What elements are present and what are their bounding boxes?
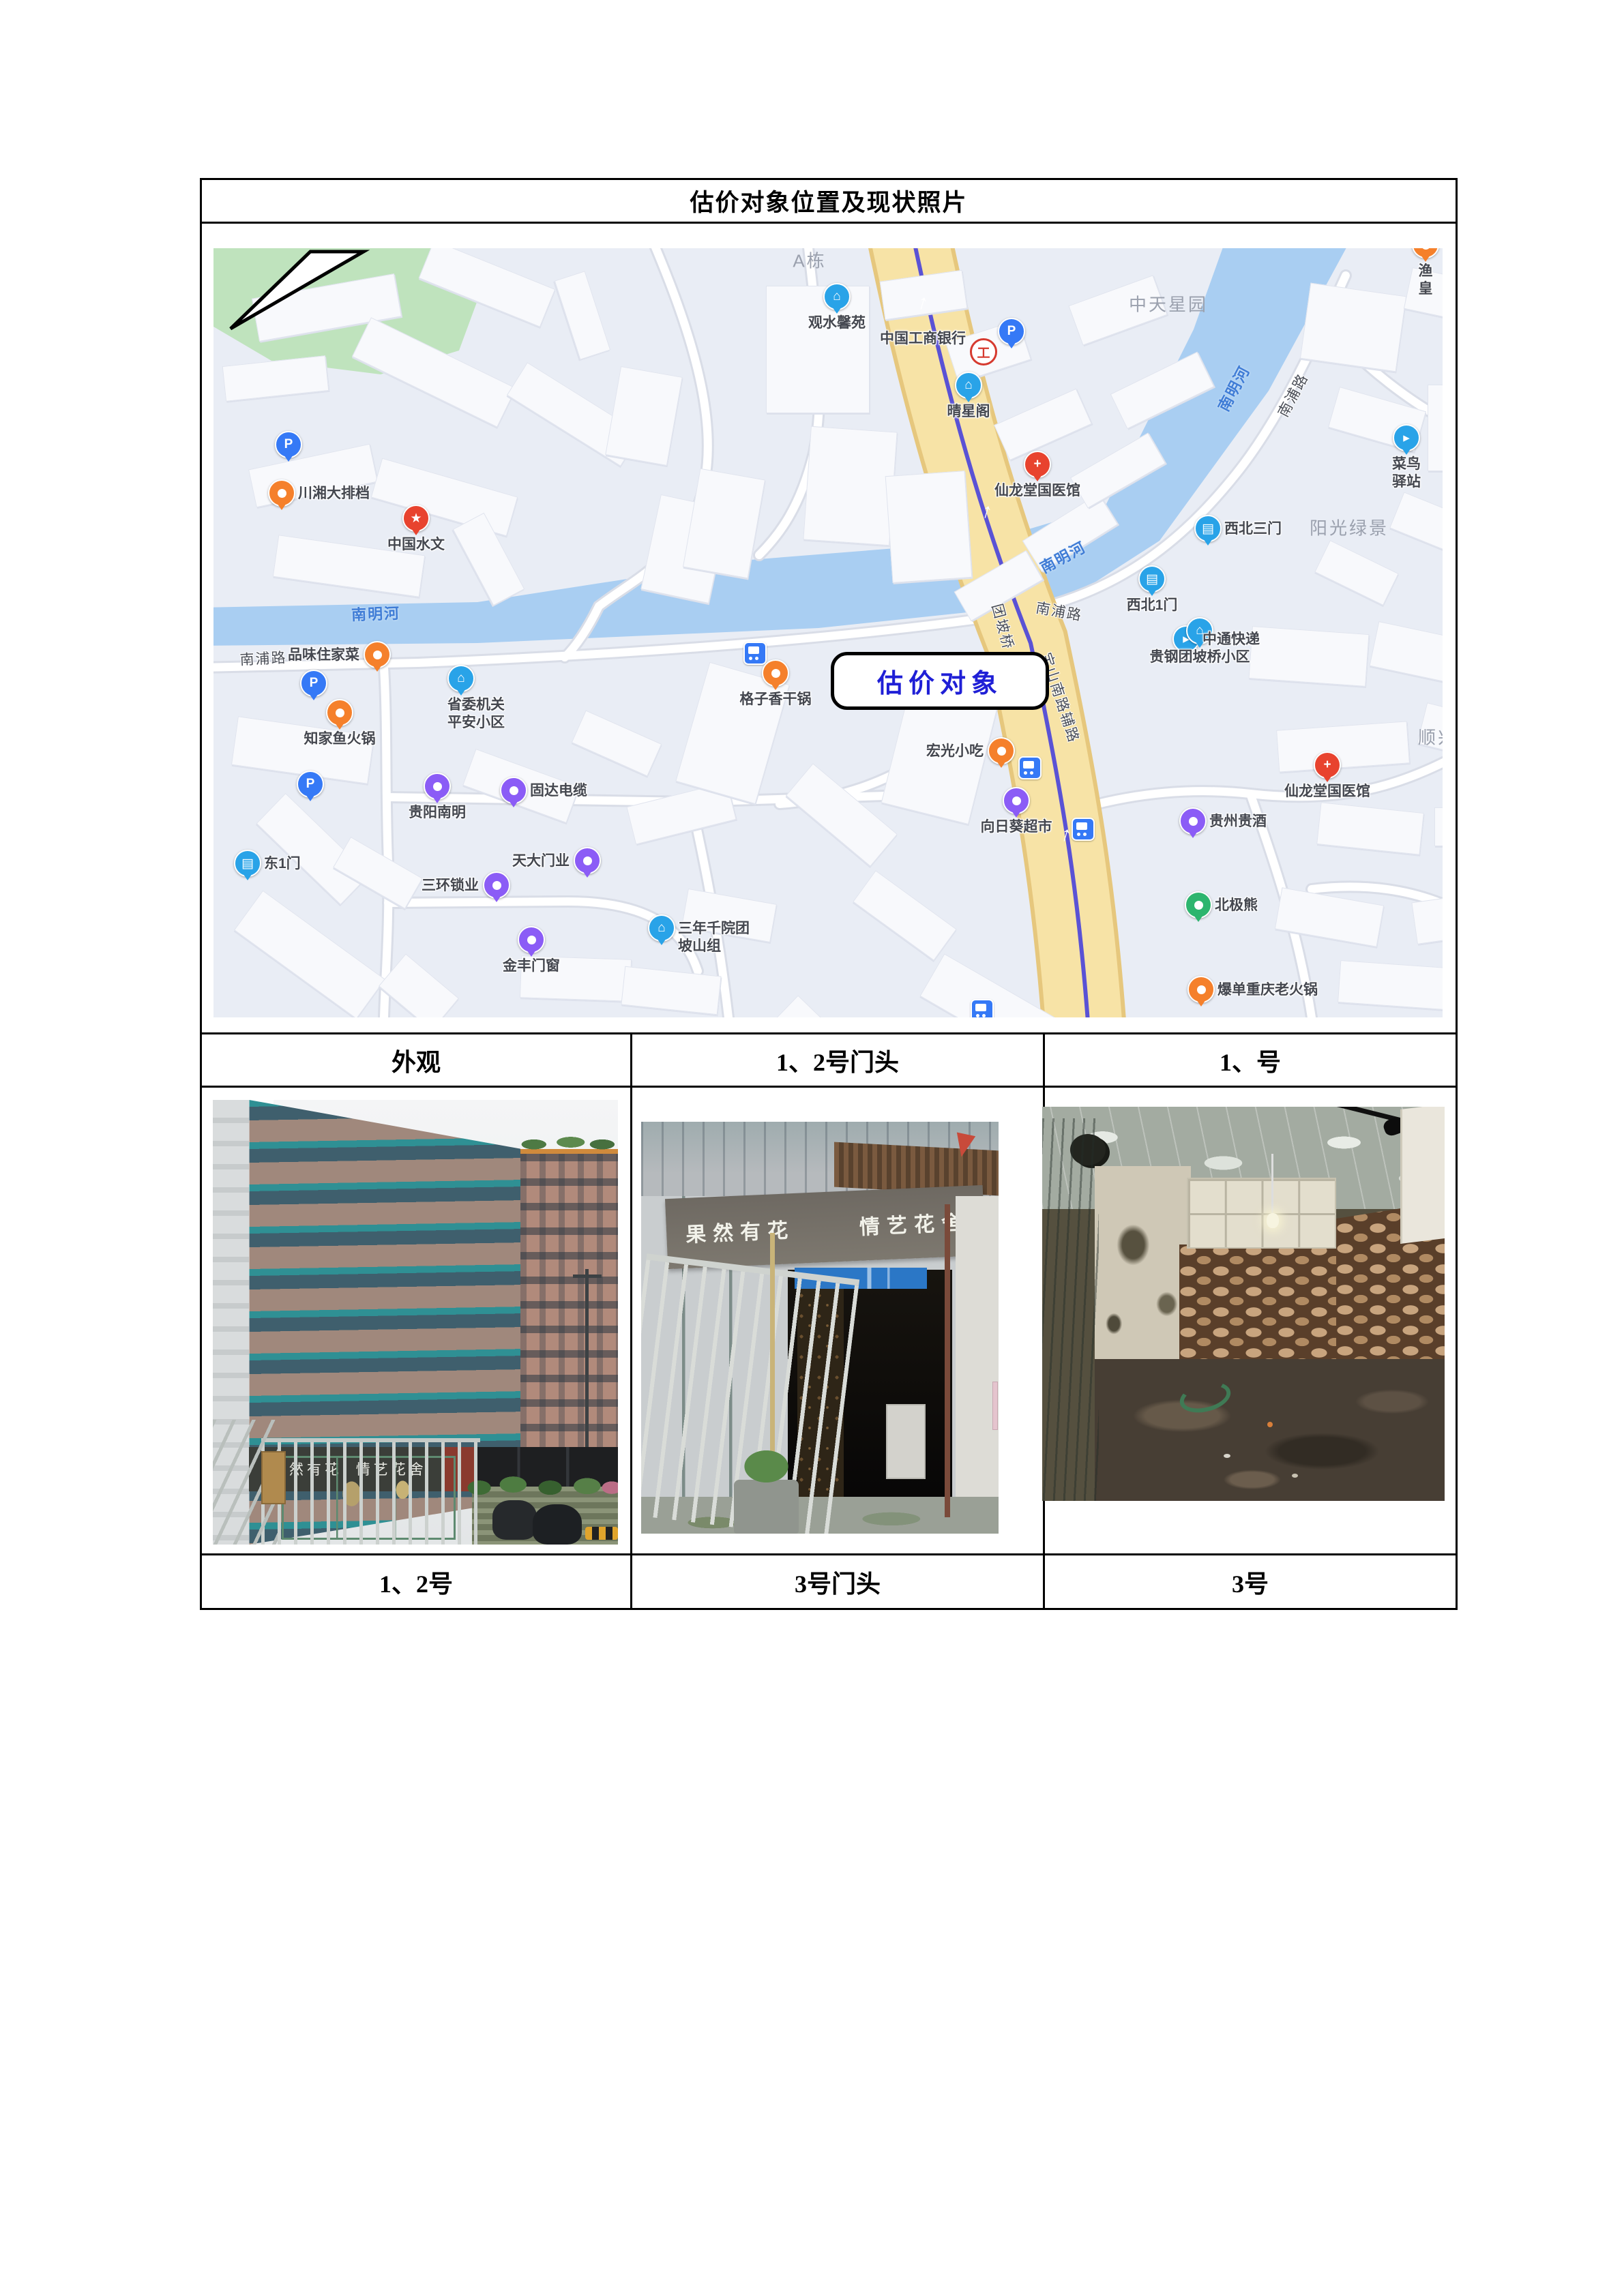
parking-pin-icon: P [998, 318, 1025, 345]
poi-label: 菜鸟驿站 [1389, 456, 1425, 492]
poi-label: 格子香干锅 [740, 691, 812, 709]
gate-pin-icon: ▤ [1138, 565, 1166, 593]
building-pin-icon: ⌂ [955, 372, 982, 399]
photo2-sign-left: 果然有花 [685, 1213, 795, 1248]
food-pin-icon [326, 699, 353, 726]
poi-label: 省委机关 平安小区 [447, 696, 505, 732]
photo1-scooter-1 [492, 1500, 537, 1540]
map-area-label: 中天星园 [1129, 291, 1208, 316]
road-direction-arrow: ↑ [915, 290, 931, 316]
photo3-right-panel [1400, 1107, 1445, 1243]
medical-pin-icon: + [1024, 451, 1051, 478]
poi-label: 固达电缆 [530, 782, 587, 800]
food-pin-icon [364, 641, 391, 668]
poi-label: 三年千院团 坡山组 [678, 920, 750, 956]
photo3-debris-1 [1224, 1454, 1230, 1458]
header-door-1-2: 1、2号门头 [776, 1043, 899, 1078]
map-area-label: A栋 [793, 248, 826, 273]
building-pin-icon: ⌂ [447, 665, 475, 692]
map-poi-layer: P川湘大排档★中国水文⌂观水馨苑工中国工商银行P⌂晴星阁+仙龙堂国医馆渔皇▸菜鸟… [213, 248, 1443, 1017]
green-pin-icon [1185, 891, 1212, 919]
photo2-signboard: 果然有花 情艺花舍 [665, 1185, 986, 1269]
road-direction-arrow: ↑ [979, 499, 995, 524]
header-cell-no1: 1、号 [1043, 1034, 1456, 1086]
poi-label: 向日葵超市 [981, 818, 1052, 836]
parking-pin-icon: P [297, 771, 324, 798]
bus-transit-icon [1018, 756, 1042, 779]
river-name-label: 南明河 [1212, 361, 1254, 415]
photo3-roller-shutter [1042, 1118, 1099, 1501]
poi-label: 中通快递 [1202, 631, 1260, 648]
photo1-roof-plants [513, 1131, 618, 1154]
photo3-light-bulb [1267, 1213, 1279, 1228]
footer-no-3: 3号 [1232, 1564, 1269, 1600]
star-pin-icon: ★ [402, 505, 430, 532]
header-no-1: 1、号 [1220, 1043, 1281, 1078]
poi-label: 渔皇 [1417, 263, 1434, 299]
poi-label: 川湘大排档 [298, 485, 370, 503]
photo1-wood-panel [261, 1451, 286, 1504]
callout-tail [213, 248, 391, 337]
photo3-stone-wall-back [1179, 1244, 1336, 1362]
building-pin-icon: ⌂ [823, 283, 851, 310]
road-name-label: 南浦路 [1034, 597, 1084, 625]
shop-pin-icon [1179, 807, 1207, 835]
photo2-red-pole [945, 1204, 950, 1517]
photo-shop-interior [1042, 1107, 1445, 1501]
photo1-metal-fence [261, 1438, 480, 1545]
bus-transit-icon [971, 999, 994, 1017]
food-pin-icon [1412, 248, 1439, 258]
poi-label: 仙龙堂国医馆 [994, 482, 1080, 500]
poi-label: 观水馨苑 [808, 314, 866, 332]
road-name-label: 南浦路 [239, 646, 287, 670]
shop-pin-icon [1003, 787, 1030, 814]
document-page: 估价对象位置及现状照片 [0, 0, 1624, 2296]
footer-door-3: 3号门头 [795, 1564, 881, 1600]
header-cell-door12: 1、2号门头 [630, 1034, 1043, 1086]
poi-label: 知家鱼火锅 [304, 730, 376, 748]
parking-pin-icon: P [300, 670, 327, 697]
poi-label: 北极熊 [1215, 897, 1258, 914]
river-name-label: 南明河 [351, 601, 400, 625]
footer-row: 1、2号 3号门头 3号 [202, 1555, 1456, 1608]
footer-cell-no3: 3号 [1043, 1555, 1456, 1608]
medical-pin-icon: + [1314, 751, 1341, 779]
river-name-label: 南明河 [1036, 535, 1090, 578]
photo-row: 果然有花 情艺花舍 [202, 1088, 1456, 1555]
photo3-debris-3 [1292, 1474, 1298, 1478]
poi-label: 品味住家菜 [288, 646, 359, 664]
building-pin-icon: ⌂ [648, 914, 675, 942]
poi-label: 宏光小吃 [926, 743, 984, 760]
shop-pin-icon [518, 926, 545, 953]
gate-pin-icon: ▤ [234, 850, 261, 877]
road-name-label: 团坡桥 [988, 601, 1020, 652]
poi-label: 西北三门 [1224, 520, 1282, 538]
food-pin-icon [268, 479, 295, 507]
food-pin-icon [988, 737, 1015, 764]
photo2-right-wall [956, 1196, 999, 1534]
photo2-white-cabinet [886, 1404, 926, 1479]
photo2-sign-right: 情艺花舍 [859, 1206, 969, 1240]
location-map: P川湘大排档★中国水文⌂观水馨苑工中国工商银行P⌂晴星阁+仙龙堂国医馆渔皇▸菜鸟… [213, 248, 1443, 1017]
poi-label: 中国工商银行 [880, 330, 966, 348]
road-name-label: 南浦路 [1273, 369, 1313, 420]
poi-label: 金丰门窗 [503, 957, 560, 975]
food-pin-icon [1187, 976, 1215, 1003]
table-title-row: 估价对象位置及现状照片 [202, 180, 1456, 224]
photo1-plants [464, 1469, 618, 1500]
photo3-bulb-cord [1271, 1154, 1273, 1217]
photo-building-exterior: 果然有花 情艺花舍 [213, 1100, 618, 1545]
icbc-bank-icon: 工 [970, 338, 997, 366]
poi-label: 东1门 [264, 855, 301, 873]
page-title: 估价对象位置及现状照片 [690, 183, 967, 218]
poi-label: 天大门业 [512, 852, 570, 870]
poi-label: 爆单重庆老火锅 [1217, 981, 1318, 999]
poi-label: 晴星阁 [947, 403, 990, 421]
parking-pin-icon: P [275, 431, 302, 458]
photo3-shelving [1187, 1178, 1335, 1249]
truck-pin-icon: ▸ [1393, 424, 1420, 451]
poi-label: 贵阳南明 [409, 804, 466, 822]
map-area-label: 阳光绿景 [1310, 515, 1389, 540]
poi-label: 仙龙堂国医馆 [1284, 783, 1370, 801]
photo2-poster [992, 1382, 998, 1430]
gate-pin-icon: ▤ [1194, 515, 1222, 542]
metro-transit-icon [1072, 818, 1095, 841]
subject-callout-text: 估价对象 [877, 662, 1003, 700]
footer-no-1-2: 1、2号 [379, 1564, 453, 1600]
subject-callout: 估价对象 [831, 652, 1049, 710]
map-row: P川湘大排档★中国水文⌂观水馨苑工中国工商银行P⌂晴星阁+仙龙堂国医馆渔皇▸菜鸟… [202, 224, 1456, 1034]
poi-label: 贵钢团坡桥小区 [1150, 648, 1250, 666]
poi-label: 三环锁业 [422, 877, 479, 895]
map-area-label: 顺兴 [1418, 724, 1443, 749]
shop-pin-icon [483, 871, 510, 899]
photo1-barrier-pole [585, 1527, 618, 1540]
shop-pin-icon [424, 773, 451, 800]
food-pin-icon [762, 659, 789, 687]
header-cell-exterior: 外观 [202, 1034, 630, 1086]
header-exterior: 外观 [392, 1043, 441, 1078]
shop-pin-icon [574, 847, 601, 874]
photo-storefront-door: 果然有花 情艺花舍 [641, 1122, 999, 1534]
bus-transit-icon [743, 642, 767, 665]
header-row: 外观 1、2号门头 1、号 [202, 1034, 1456, 1088]
photo1-scooter-2 [533, 1504, 581, 1545]
poi-label: 贵州贵酒 [1209, 813, 1267, 831]
appraisal-photo-table: 估价对象位置及现状照片 [200, 178, 1458, 1610]
photo2-planter [734, 1480, 798, 1534]
footer-cell-no12: 1、2号 [202, 1555, 630, 1608]
photo3-plaster-wall [1095, 1166, 1192, 1363]
photo3-floor [1095, 1359, 1445, 1501]
shop-pin-icon [500, 777, 527, 804]
footer-cell-door3: 3号门头 [630, 1555, 1043, 1608]
poi-label: 西北1门 [1127, 597, 1178, 614]
poi-label: 中国水文 [387, 536, 445, 554]
